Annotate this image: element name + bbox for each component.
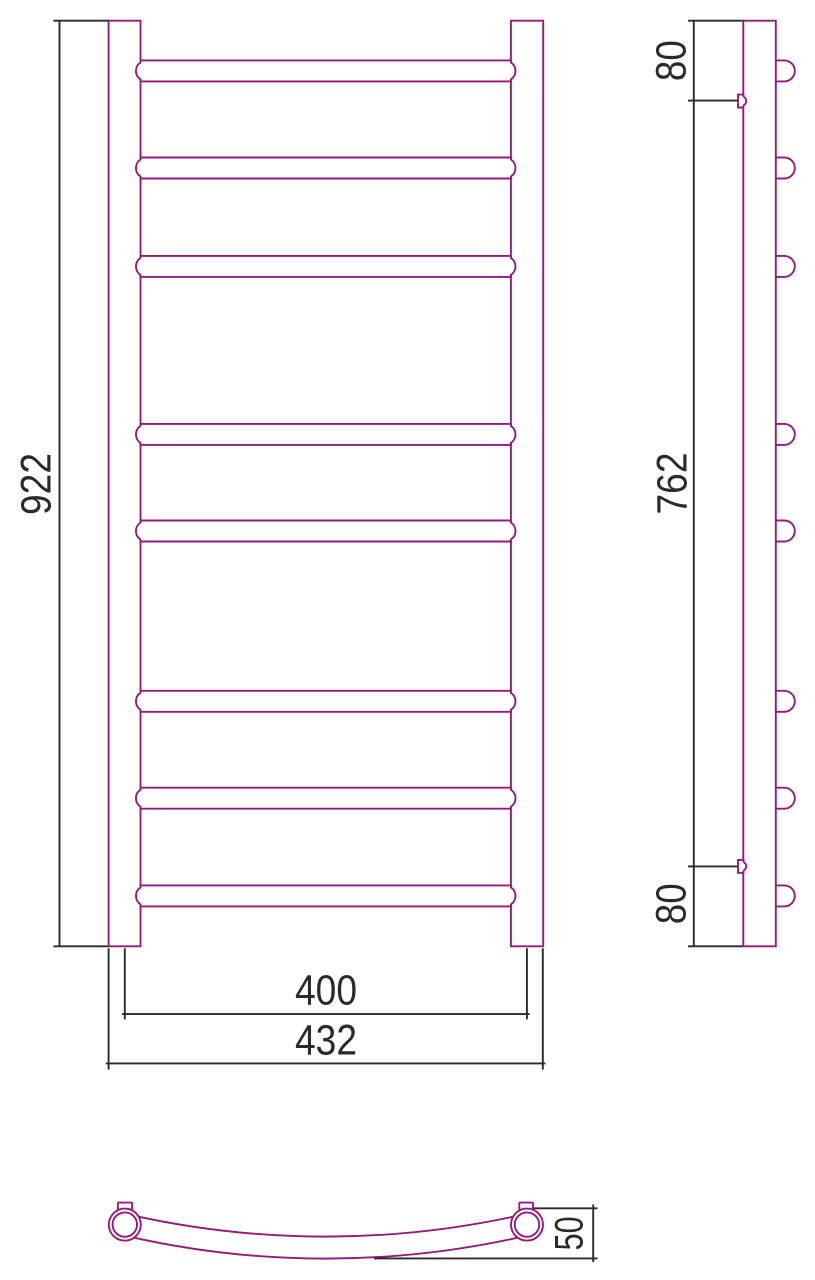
svg-text:50: 50 (548, 1216, 592, 1250)
svg-text:432: 432 (295, 1016, 357, 1064)
svg-text:80: 80 (648, 40, 696, 81)
svg-text:400: 400 (295, 966, 357, 1014)
svg-text:762: 762 (649, 453, 697, 515)
svg-text:80: 80 (648, 883, 696, 924)
svg-text:922: 922 (12, 453, 60, 515)
